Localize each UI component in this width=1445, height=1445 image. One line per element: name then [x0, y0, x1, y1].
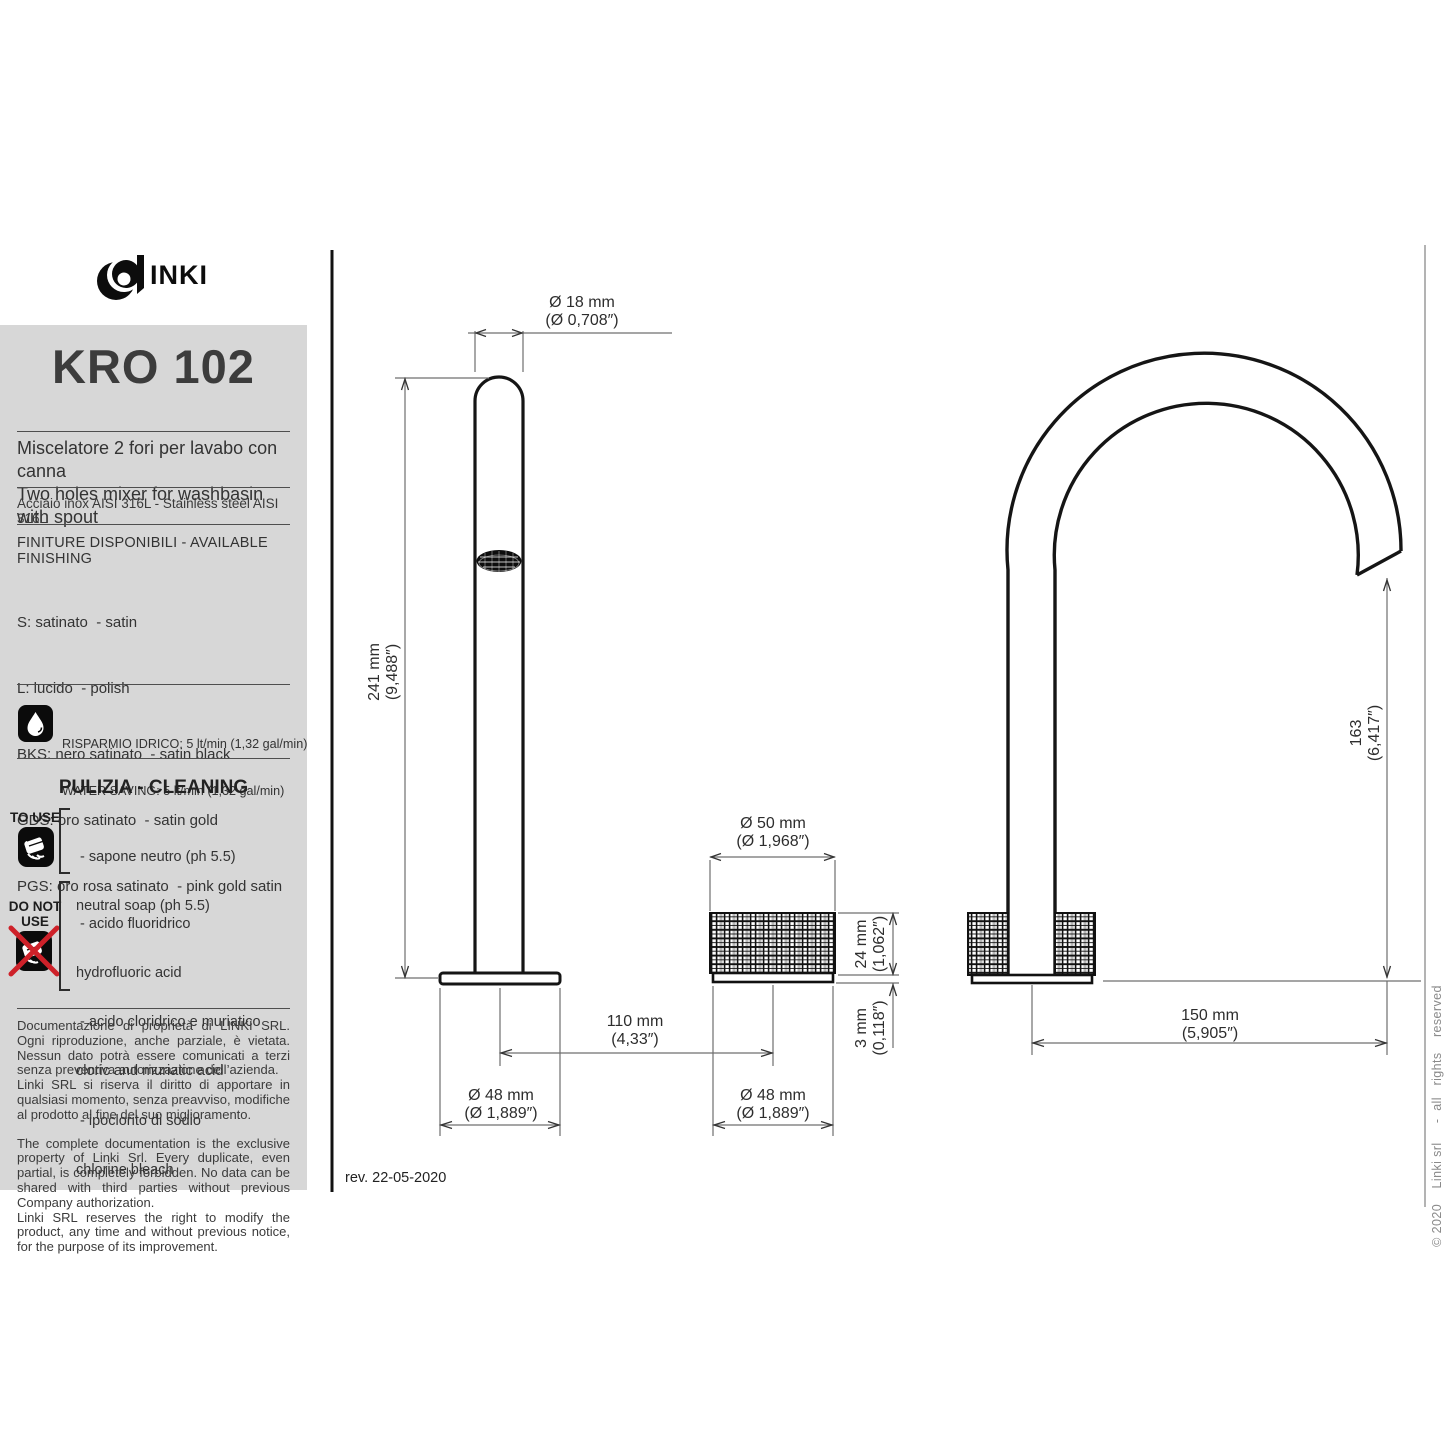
divider [17, 1008, 290, 1009]
legal-en-1: The complete documentation is the exclus… [17, 1137, 290, 1211]
do-not-use-item: - acido fluoridrico [76, 916, 261, 932]
cleaning-heading: PULIZIA - CLEANING [0, 777, 307, 799]
material-line: Acciaio inox AISI 316L - Stainless steel… [0, 496, 307, 526]
finish-item: S: satinato - satin [17, 612, 290, 634]
product-info-panel: KRO 102 Miscelatore 2 fori per lavabo co… [0, 325, 307, 1190]
logo-text: INKI [150, 260, 208, 291]
dim-spout-outlet-height: 163(6,417″) [1348, 705, 1384, 761]
divider [17, 524, 290, 525]
dimension-arrows [402, 330, 1391, 1129]
water-saving-text: RISPARMIO IDRICO: 5 lt/min (1,32 gal/min… [62, 706, 307, 830]
dimension-lines [395, 331, 1421, 1136]
spout-side-view [968, 353, 1401, 983]
spout-front-view [440, 377, 560, 984]
dim-handle-height: 24 mm(1,062″) [853, 916, 889, 972]
dim-hole-distance: 110 mm(4,33″) [607, 1013, 664, 1049]
finishes-heading: FINITURE DISPONIBILI - AVAILABLE FINISHI… [0, 535, 307, 567]
divider [17, 487, 290, 488]
to-use-item: - sapone neutro (ph 5.5) [76, 849, 236, 865]
crossed-sponge-icon [16, 931, 52, 971]
legal-it-1: Documentazione di proprietà di LINKI SRL… [17, 1019, 290, 1078]
handle-front-view [710, 913, 835, 982]
to-use-bracket [59, 808, 70, 874]
linki-logo-icon [97, 253, 149, 305]
revision-date: rev. 22-05-2020 [345, 1170, 446, 1186]
datasheet-page: INKI KRO 102 Miscelatore 2 fori per lava… [0, 0, 1445, 1445]
dim-spout-base-diameter: Ø 48 mm(Ø 1,889″) [464, 1087, 537, 1123]
to-use-label: TO USE [8, 810, 62, 825]
water-saving-it: RISPARMIO IDRICO: 5 lt/min (1,32 gal/min… [62, 737, 307, 753]
dim-handle-base-diameter: Ø 48 mm(Ø 1,889″) [736, 1087, 809, 1123]
sponge-hand-icon [18, 827, 54, 867]
divider [17, 684, 290, 685]
dim-plate-height: 3 mm(0,118″) [853, 1000, 889, 1055]
dim-spout-diameter: Ø 18 mm(Ø 0,708″) [545, 294, 618, 330]
divider [17, 431, 290, 432]
product-code: KRO 102 [0, 339, 307, 394]
legal-en-2: Linki SRL reserves the right to modify t… [17, 1211, 290, 1255]
dim-handle-diameter: Ø 50 mm(Ø 1,968″) [736, 815, 809, 851]
spout-aerator [477, 550, 522, 572]
legal-it-2: Linki SRL si riserva il diritto di appor… [17, 1078, 290, 1122]
do-not-use-item: hydrofluoric acid [76, 965, 261, 981]
copyright-text: © 2020 Linki srl - all rights reserved [1430, 985, 1444, 1247]
dim-spout-height: 241 mm(9,488″) [366, 643, 402, 701]
dim-spout-reach: 150 mm(5,905″) [1181, 1007, 1239, 1043]
linki-logo: INKI [97, 253, 237, 305]
do-not-use-bracket [59, 881, 70, 991]
divider [17, 758, 290, 759]
water-drop-icon [18, 705, 53, 742]
product-description-it: Miscelatore 2 fori per lavabo con canna [17, 437, 290, 483]
finish-item: L: lucido - polish [17, 678, 290, 700]
red-x-icon [7, 924, 61, 978]
legal-text: Documentazione di proprietà di LINKI SRL… [0, 1019, 307, 1255]
